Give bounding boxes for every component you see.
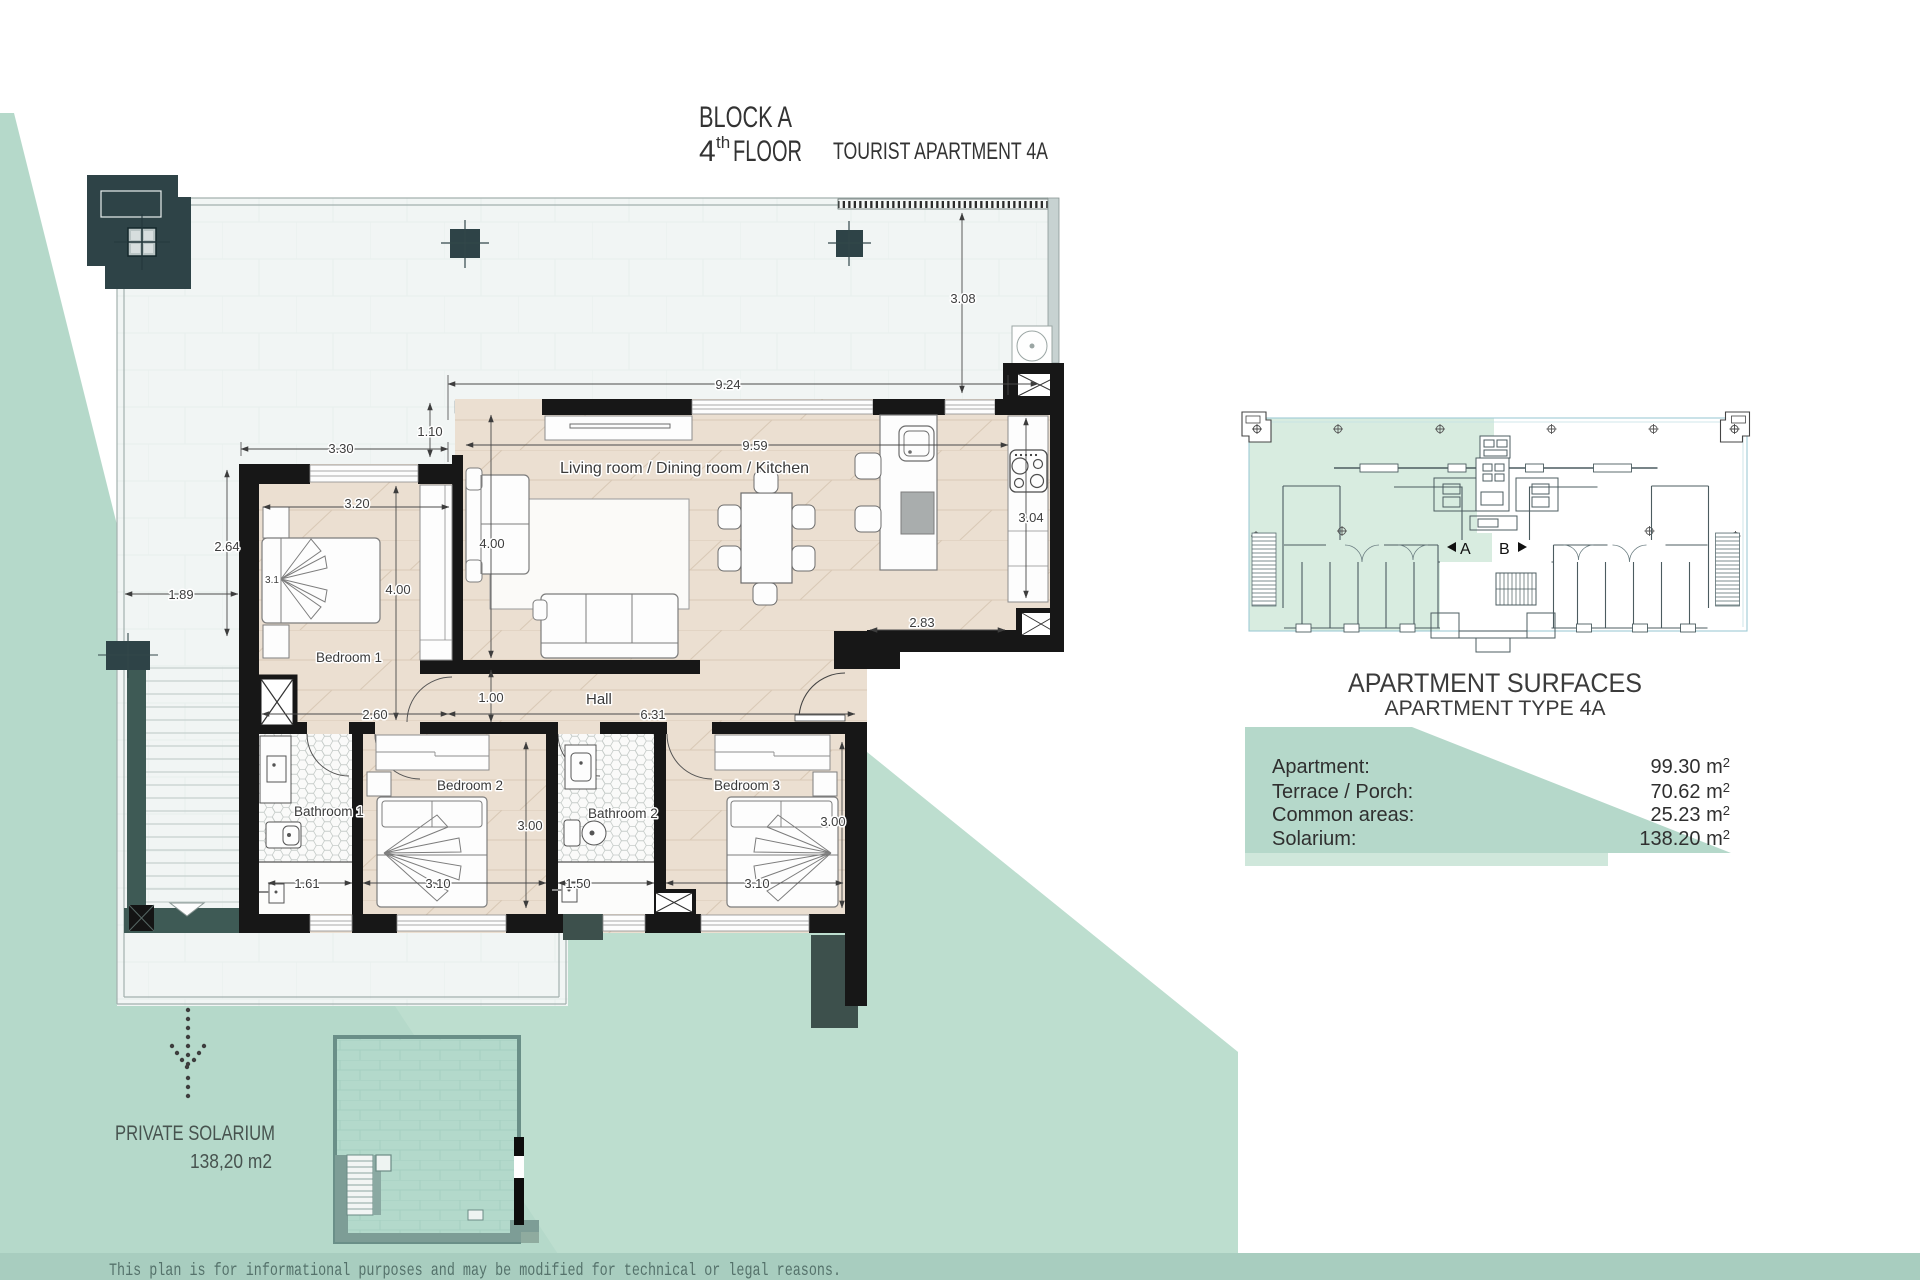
svg-text:3.10: 3.10	[425, 876, 450, 891]
svg-text:2.60: 2.60	[362, 707, 387, 722]
svg-text:Bathroom 2: Bathroom 2	[588, 806, 658, 821]
svg-text:APARTMENT SURFACES: APARTMENT SURFACES	[1348, 668, 1642, 698]
svg-text:PRIVATE SOLARIUM: PRIVATE SOLARIUM	[115, 1122, 275, 1145]
svg-text:9.24: 9.24	[715, 377, 740, 392]
svg-text:3.1: 3.1	[265, 575, 279, 586]
svg-text:Common areas:: Common areas:	[1272, 804, 1414, 826]
svg-text:1.50: 1.50	[565, 876, 590, 891]
svg-text:Bedroom 3: Bedroom 3	[714, 778, 780, 793]
svg-text:3.00: 3.00	[820, 814, 845, 829]
svg-text:9.59: 9.59	[742, 438, 767, 453]
svg-text:Solarium:: Solarium:	[1272, 828, 1356, 850]
svg-text:Terrace / Porch:: Terrace / Porch:	[1272, 781, 1413, 803]
svg-text:A: A	[1460, 541, 1471, 558]
svg-text:4: 4	[699, 135, 716, 168]
svg-text:FLOOR: FLOOR	[733, 135, 802, 168]
svg-text:25.23 m2: 25.23 m2	[1651, 803, 1731, 826]
svg-text:B: B	[1499, 541, 1510, 558]
svg-text:Living room / Dining room / Ki: Living room / Dining room / Kitchen	[560, 460, 809, 477]
svg-text:th: th	[716, 133, 730, 152]
svg-text:138,20 m2: 138,20 m2	[190, 1151, 272, 1173]
svg-text:Bedroom 1: Bedroom 1	[316, 650, 382, 665]
svg-text:1.00: 1.00	[478, 690, 503, 705]
svg-text:1.61: 1.61	[294, 876, 319, 891]
svg-text:3.20: 3.20	[344, 496, 369, 511]
svg-text:APARTMENT TYPE 4A: APARTMENT TYPE 4A	[1385, 697, 1606, 720]
svg-text:Bedroom 2: Bedroom 2	[437, 778, 503, 793]
svg-text:TOURIST APARTMENT 4A: TOURIST APARTMENT 4A	[833, 138, 1048, 165]
svg-text:1.89: 1.89	[168, 587, 193, 602]
svg-text:99.30 m2: 99.30 m2	[1651, 755, 1731, 778]
svg-text:BLOCK A: BLOCK A	[699, 101, 792, 134]
svg-text:Apartment:: Apartment:	[1272, 756, 1370, 778]
svg-text:Hall: Hall	[586, 691, 612, 708]
svg-text:3.08: 3.08	[950, 291, 975, 306]
svg-text:3.10: 3.10	[744, 876, 769, 891]
svg-text:6.31: 6.31	[640, 707, 665, 722]
svg-text:3.30: 3.30	[328, 441, 353, 456]
svg-text:2.83: 2.83	[909, 615, 934, 630]
svg-text:2.64: 2.64	[214, 539, 239, 554]
svg-text:1.10: 1.10	[417, 424, 442, 439]
svg-text:This plan is for informational: This plan is for informational purposes …	[109, 1261, 841, 1280]
svg-text:3.00: 3.00	[517, 818, 542, 833]
svg-text:Bathroom 1: Bathroom 1	[294, 804, 364, 819]
svg-text:70.62 m2: 70.62 m2	[1651, 780, 1731, 803]
svg-text:4.00: 4.00	[385, 582, 410, 597]
svg-text:138.20 m2: 138.20 m2	[1639, 827, 1730, 850]
svg-text:4.00: 4.00	[479, 536, 504, 551]
svg-text:3.04: 3.04	[1018, 510, 1043, 525]
